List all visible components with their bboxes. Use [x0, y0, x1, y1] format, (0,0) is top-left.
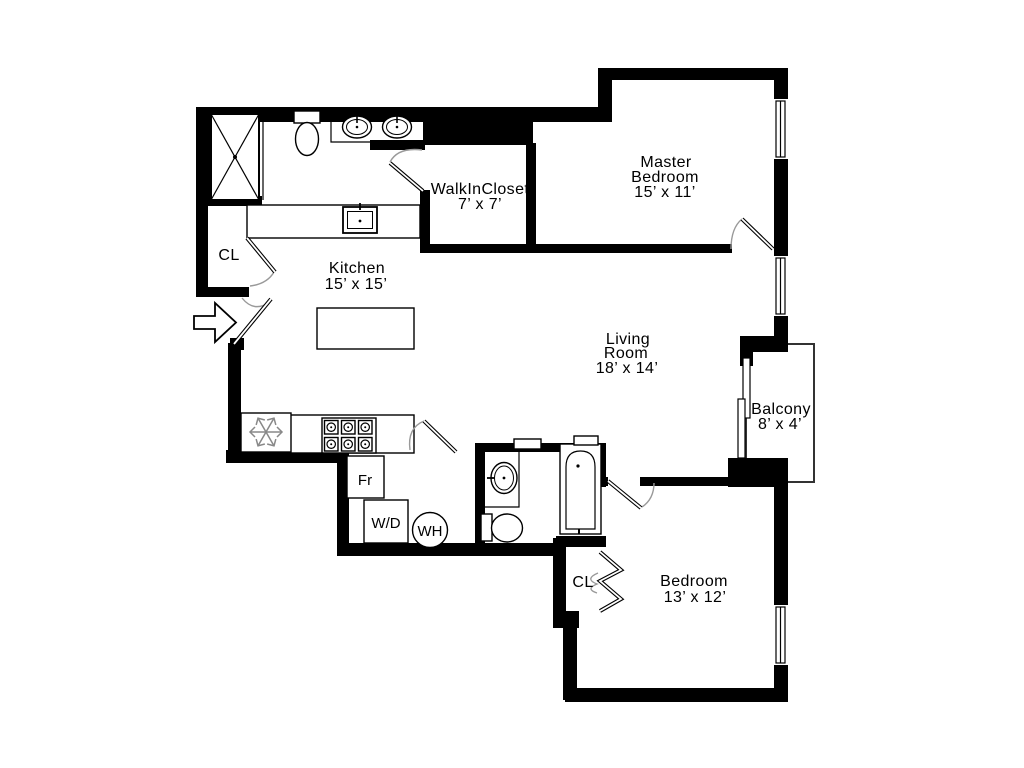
kitchen-label: Kitchen	[329, 260, 385, 277]
freezer	[241, 413, 291, 452]
kitchen-dims: 15’ x 15’	[325, 276, 388, 293]
kitchen-counter-north	[247, 205, 420, 238]
entry-closet-label: CL	[218, 247, 239, 264]
floor-plan-canvas: Master Bedroom 15’ x 11’ WalkInCloset 7’…	[0, 0, 1024, 768]
master-bath-toilet	[294, 111, 320, 156]
bathroom2-toilet	[481, 514, 523, 542]
washer-dryer-label: W/D	[371, 515, 400, 532]
stove	[322, 418, 376, 453]
bedroom-label: Bedroom	[660, 573, 728, 590]
master-bedroom-dims: 15’ x 11’	[634, 184, 695, 201]
kitchen-island	[317, 308, 414, 349]
window-master-bedroom-1	[772, 99, 789, 159]
window-master-bedroom-2	[772, 256, 789, 316]
living-room-dims: 18’ x 14’	[596, 360, 659, 377]
walk-in-closet-dims: 7’ x 7’	[458, 196, 502, 213]
bedroom-closet-label: CL	[572, 574, 593, 591]
shower	[211, 114, 263, 200]
balcony-dims: 8’ x 4’	[758, 416, 802, 433]
kitchen-sink	[343, 203, 377, 233]
refrigerator-label: Fr	[358, 472, 372, 489]
window-bedroom	[772, 605, 789, 665]
water-heater-label: WH	[418, 523, 443, 540]
bathtub	[560, 444, 601, 534]
bedroom-dims: 13’ x 12’	[664, 589, 727, 606]
